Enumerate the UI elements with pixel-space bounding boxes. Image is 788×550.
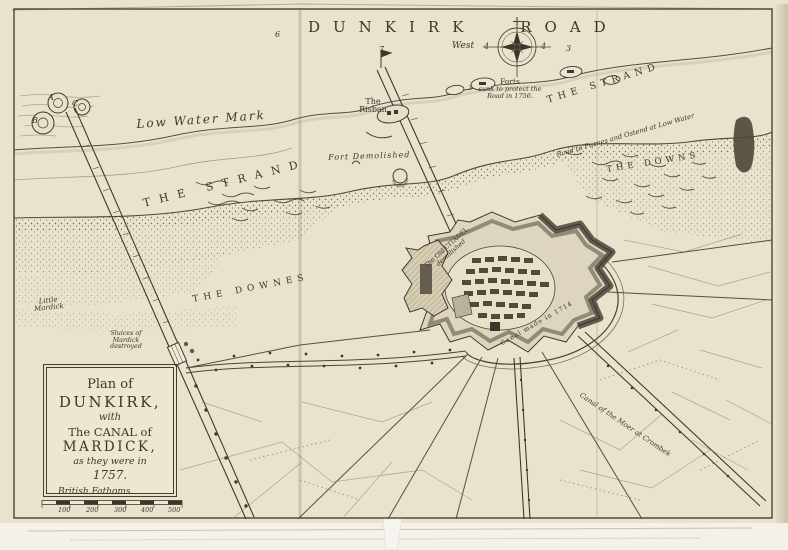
forts-note-l3: Road in 1756.: [462, 93, 558, 100]
sounding: 3: [566, 45, 571, 53]
title-line-7: 1757.: [47, 468, 173, 483]
sluices-l3: destroyed: [98, 344, 154, 351]
sounding: 3: [468, 85, 472, 92]
scale-tick: 500: [168, 507, 180, 514]
title-line-1: Plan of: [47, 377, 173, 393]
scale-tick: 200: [86, 507, 98, 514]
scale-tick: 400: [141, 507, 153, 514]
jetty-letter-a: A: [48, 94, 54, 102]
sounding: 4: [541, 43, 546, 51]
map-sheet: DUNKIRK ROAD West Forts sunk to protect …: [0, 0, 788, 550]
west-label: West: [452, 42, 474, 51]
scale-tick: 100: [58, 507, 70, 514]
sounding: 7: [379, 46, 384, 54]
risban-l2: Risban: [350, 106, 396, 114]
title-line-3: with: [47, 412, 173, 425]
sea-title: DUNKIRK ROAD: [308, 20, 619, 36]
sounding: 6: [275, 31, 280, 39]
harbour-basin: [452, 294, 472, 318]
title-line-5: MARDICK,: [47, 439, 173, 456]
title-line-4: The CANAL of: [47, 425, 173, 439]
scale-tick: 300: [114, 507, 126, 514]
title-line-2: DUNKIRK,: [47, 393, 173, 412]
title-cartouche: Plan of DUNKIRK, with The CANAL of MARDI…: [46, 367, 174, 494]
scale-bar-label: British Fathoms.: [58, 488, 133, 497]
title-line-6: as they were in: [47, 456, 173, 468]
scale-bar-ticks: 100 200 300 400 500: [0, 507, 220, 517]
jetty-letter-c: C: [72, 100, 78, 108]
map-plate: DUNKIRK ROAD West Forts sunk to protect …: [0, 0, 788, 550]
pond: [734, 117, 755, 173]
forts-note: Forts sunk to protect the Road in 1756.: [462, 78, 558, 100]
sluices-label: Sluices of Mardick destroyed: [98, 331, 154, 351]
sounding: 4: [484, 43, 489, 51]
risban-label: The Risban: [350, 98, 396, 115]
jetty-letter-b: B: [32, 117, 38, 125]
